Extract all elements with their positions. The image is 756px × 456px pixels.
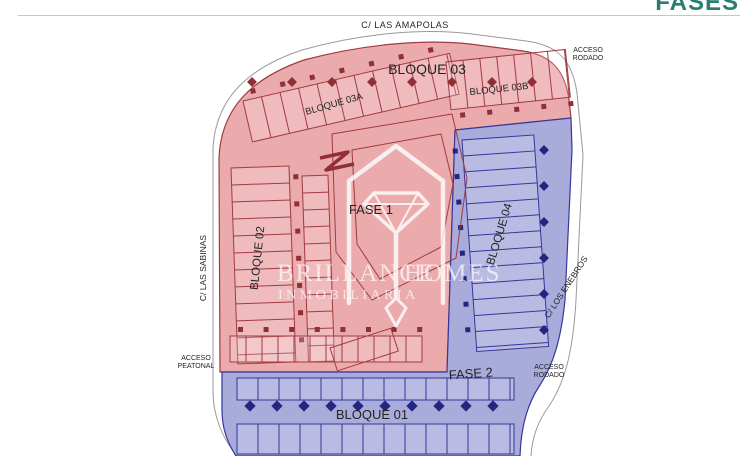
access-bottom-right-line2: RODADO [534, 372, 565, 379]
access-bottom-right-line1: ACCESO [534, 364, 564, 371]
label-bloque-01: BLOQUE 01 [336, 407, 408, 422]
street-label-left: C/ LAS SABINAS [198, 235, 208, 301]
label-bloque-03: BLOQUE 03 [388, 61, 466, 77]
access-top-right-line1: ACCESO [573, 47, 603, 54]
label-fase-1: FASE 1 [349, 202, 393, 217]
access-bottom-left-line2: PEATONAL [178, 363, 215, 370]
label-fase-2: FASE 2 [448, 364, 493, 382]
access-bottom-left-line1: ACCESO [181, 355, 211, 362]
watermark-tagline: INMOBILIARIA [278, 288, 419, 303]
page: FASES BRILLANCE HOMES [0, 0, 756, 456]
access-top-right-line2: RODADO [573, 55, 604, 62]
site-plan-drawing: BRILLANCE HOMES INMOBILIARIA C/ LAS AMAP… [0, 0, 756, 456]
street-label-top: C/ LAS AMAPOLAS [361, 20, 449, 30]
